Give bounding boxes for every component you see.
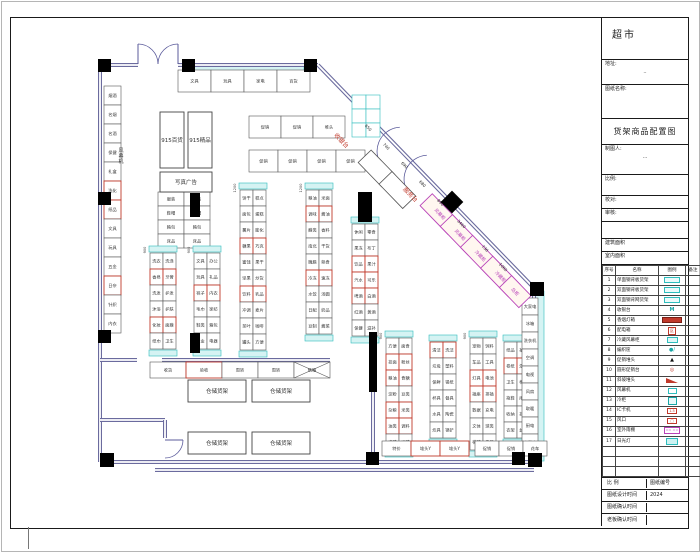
shelf-label: 文具	[108, 225, 117, 232]
shelf-cell	[352, 95, 366, 109]
shelf-label: 电视	[526, 371, 535, 378]
shelf-label: 周转	[272, 367, 280, 374]
legend-row	[603, 446, 700, 456]
shelf-label: 熟食	[321, 259, 330, 266]
column	[182, 59, 195, 72]
shelf-label: 收纳	[506, 411, 514, 418]
shelf-label: 黄酒	[367, 309, 375, 316]
column	[100, 453, 114, 467]
shelf-cell	[352, 109, 366, 123]
shelf-label: 纸巾	[152, 338, 160, 345]
shelf-label: 花车	[531, 445, 539, 452]
address-row: 地址: ··	[602, 60, 688, 85]
shelf-label: 豆制	[308, 323, 316, 330]
building-area-label: 建筑面积	[602, 239, 688, 252]
address-value: ··	[605, 70, 685, 76]
shelf-label: 酱菜	[321, 323, 330, 330]
shelf-label: 充电	[485, 407, 494, 414]
shelf-label: 促销	[259, 158, 267, 165]
door-arc	[165, 440, 183, 458]
shelf-label: 薯片	[242, 227, 250, 234]
shelf-label: 面食	[401, 343, 410, 350]
shelf-label: 文具	[196, 258, 205, 265]
door-arc	[158, 44, 178, 64]
shelf-label: 特价	[392, 445, 401, 451]
title-block-bottom-row: 图纸设计时间2024	[602, 490, 688, 502]
shelf-label: 饮料	[242, 291, 251, 298]
shelf-label: 挂面	[388, 359, 396, 366]
shelf-label: 五金	[108, 263, 117, 269]
legend-symbol-cyansm	[668, 388, 677, 394]
column	[190, 193, 200, 217]
shelf-label: 床品	[167, 238, 175, 245]
shelf-label: 零食	[367, 229, 376, 236]
shelf-label: 纸品	[108, 206, 116, 213]
shelf-label: 洗洁	[445, 347, 453, 354]
shelf-label: 速冻	[321, 275, 329, 282]
shelf-label: 汤圆	[321, 291, 329, 298]
shelf-label: 调料	[401, 423, 410, 430]
shelf-label: 米类	[401, 407, 410, 414]
legend-row: 10圆形促销台◎	[603, 366, 700, 376]
shelf-label: 冰箱	[526, 320, 534, 327]
shelf-label: 蛋糕	[255, 211, 264, 218]
legend-symbol-cyanrect	[664, 297, 680, 303]
column	[369, 332, 377, 392]
shelf-endcap	[305, 183, 333, 189]
shelf-label: 粮油	[308, 195, 316, 202]
fixture-label: 915百货	[161, 136, 183, 144]
check-label: 校对:	[602, 196, 688, 209]
shelf-label: 水饺	[308, 291, 317, 298]
legend-row	[603, 456, 700, 466]
shelf-label: 糖果	[242, 243, 251, 250]
legend-row: 3双面钢背网货架	[603, 296, 700, 306]
legend-table: 序号名称图例备注1单面钢背板货架2双面钢背板货架3双面钢背网货架4收银台M5香烟…	[602, 265, 688, 478]
legend-row	[603, 466, 700, 476]
shelf-label: 鞋帽	[167, 210, 175, 217]
legend-row: 6配电箱区	[603, 326, 700, 336]
fixture-label: 写真广告	[175, 178, 198, 186]
drawing-name-label: 图纸名称:	[602, 85, 688, 119]
shelf-label: 饮品	[354, 261, 362, 268]
legend-symbol-tealsm	[667, 337, 678, 343]
shelf-label: 茶叶	[242, 323, 251, 330]
shelf-label: 服装	[167, 196, 176, 203]
shelf-label: 卷纸	[506, 363, 515, 370]
legend-symbol-tri: ▲	[670, 357, 674, 363]
shelf-label: 促销	[293, 124, 301, 131]
shelf-label: 杂粮	[388, 407, 397, 414]
shelf-label: 插座	[472, 391, 480, 398]
plan-text: 1200	[233, 184, 237, 193]
legend-row: 15风口□	[603, 416, 700, 426]
legend-symbol-tealbox	[668, 397, 677, 405]
shelf-label: 车品	[472, 359, 480, 366]
plan-text: 900	[143, 247, 147, 254]
shelf-label: 乳品	[255, 291, 263, 298]
shelf-label: 清洁	[432, 347, 440, 354]
shelf-label: 休闲	[354, 229, 362, 236]
shelf-label: 饲料	[485, 343, 494, 350]
shelf-label: 坚果	[242, 275, 251, 282]
column	[304, 59, 317, 72]
floor-plan: 烟酒名烟名酒保健礼盒洗化纸品文具玩具五金日杂针织内衣服装服装鞋帽鞋帽箱包箱包床品…	[0, 0, 600, 555]
shelf-label: 礼盒	[108, 168, 117, 175]
shelf-label: 米面	[321, 195, 329, 202]
title-block-bottom-rows: 比 例图纸编号图纸设计时间2024图纸确认时间老板确认时间	[602, 478, 688, 526]
fixture-label: 仓储货架	[206, 387, 229, 395]
plan-text: 风幕机	[118, 148, 123, 165]
fixture-label: 仓储货架	[270, 387, 293, 395]
shelf-cell	[366, 95, 380, 109]
shelf-label: 促销	[507, 445, 515, 452]
address-label: 地址:	[605, 61, 617, 67]
shelf-endcap	[149, 350, 177, 356]
shelf-label: 餐具	[445, 395, 454, 402]
blank-row	[602, 222, 688, 239]
shelf-label: 咖啡	[255, 323, 264, 330]
legend-symbol-tealM: M	[670, 307, 675, 313]
legend-symbol-cyanrect	[664, 277, 680, 283]
legend-symbol-redbox: 区	[668, 327, 676, 335]
title-block-bottom-row: 图纸确认时间	[602, 502, 688, 514]
shelf-label: 风扇	[526, 388, 534, 395]
door-arc	[138, 44, 158, 64]
shelf-label: 卫生	[165, 338, 173, 344]
shelf-label: 袜子	[196, 290, 204, 297]
shelf-label: 促销	[346, 158, 354, 165]
shelf-label: 名酒	[108, 130, 116, 137]
shelf-label: 促销	[483, 445, 491, 452]
shelf-label: 油类	[388, 423, 397, 430]
fixture-label: 仓储货架	[270, 439, 293, 447]
legend-row: 8编织筐●/	[603, 346, 700, 356]
column	[358, 192, 372, 222]
legend-symbol-redsm: □	[667, 418, 677, 424]
shelf-label: 食糖	[401, 375, 410, 382]
shelf-label: 护肤	[165, 306, 174, 313]
shelf-label: 针织	[108, 301, 116, 308]
legend-header: 名称	[616, 266, 659, 276]
column	[528, 453, 542, 467]
shelf-label: 家纺	[209, 306, 217, 313]
shelf-label: 保鲜	[432, 379, 441, 386]
fixture-label: 915精品	[189, 136, 211, 144]
shelf-cell	[352, 123, 366, 137]
shelf-label: 衣架	[506, 427, 514, 434]
shelf-label: 护发	[165, 290, 174, 297]
shelf-label: 烟酒	[108, 92, 116, 99]
legend-symbol-dot: ●/	[669, 347, 675, 353]
title-block-bottom-row: 老板确认时间	[602, 514, 688, 526]
plan-text: 900	[187, 247, 191, 254]
shelf-label: 布丁	[367, 245, 375, 252]
legend-row: 17日光灯	[603, 436, 700, 446]
shelf-label: 鞋类	[196, 322, 205, 329]
shelf-label: 方便	[388, 343, 397, 350]
shelf-label: 果冻	[354, 245, 362, 252]
plan-text: 900	[379, 333, 383, 340]
shelf-label: 冷冻	[308, 275, 316, 282]
shelf-label: 促销	[261, 124, 269, 131]
shelf-label: 厨电	[526, 422, 535, 428]
shelf-label: 锅铲	[445, 427, 453, 434]
column	[98, 59, 111, 72]
shelf-label: 堆头Y	[420, 445, 431, 452]
shelf-label: 卫生	[506, 379, 514, 385]
shelf-label: 名烟	[108, 111, 116, 118]
shelf-label: 堆头Y	[449, 445, 460, 452]
shelf-label: 面包	[242, 211, 251, 218]
legend-symbol-cyanrect	[664, 287, 680, 293]
shelf-label: 罐头	[242, 339, 250, 346]
shelf-label: 啤酒	[354, 293, 362, 300]
shelf-label: 堆头	[325, 124, 333, 131]
column	[98, 192, 111, 205]
shelf-endcap	[149, 246, 177, 252]
legend-row: 9促销堆头▲	[603, 356, 700, 366]
cad-drawing-page: { "title_block": { "store_name": "超市", "…	[0, 0, 700, 555]
shelf-label: 醋类	[308, 227, 317, 234]
drawing-title: 货架商品配置图	[602, 119, 688, 145]
scale-label: 比例:	[602, 175, 688, 196]
legend-symbol-circ: ◎	[670, 367, 674, 373]
shelf-endcap	[469, 331, 497, 337]
legend-row: 14IC卡机1.5	[603, 406, 700, 416]
shelf-label: 促销	[317, 158, 325, 165]
legend-row: 4收银台M	[603, 306, 700, 316]
shelf-label: 淀粉	[388, 391, 397, 398]
shelf-endcap	[239, 183, 267, 189]
shelf-label: 洗涤	[165, 258, 173, 265]
title-block: 超市 地址: ·· 图纸名称: 货架商品配置图 制图人: ··· 比例: 校对:…	[601, 18, 688, 526]
column	[366, 452, 379, 465]
shelf-label: 垃圾	[432, 363, 441, 370]
shelf-label: 空调	[526, 354, 534, 361]
shelf-label: 水具	[432, 411, 441, 418]
shelf-label: 蜜饯	[242, 259, 250, 266]
interior-area-label: 室内面积	[602, 252, 688, 265]
shelf-label: 汽水	[354, 277, 363, 283]
shelf-label: 饼干	[242, 195, 250, 202]
column	[98, 330, 111, 343]
legend-row: 1单面钢背板货架	[603, 276, 700, 286]
shelf-label: 杯具	[432, 395, 441, 402]
shelf-endcap	[305, 335, 333, 341]
plan-text: 900	[463, 333, 467, 340]
shelf-label: 香料	[321, 227, 330, 234]
shelf-label: 礼品	[209, 274, 217, 281]
shelf-label: 验收	[200, 367, 209, 374]
shelf-label: 陶瓷	[445, 411, 453, 418]
shelf-label: 箱包	[193, 224, 202, 231]
shelf-label: 取暖	[526, 405, 535, 412]
legend-row: 13冷柜	[603, 396, 700, 406]
legend-header: 序号	[603, 266, 616, 276]
shelf-label: 面膜	[165, 322, 173, 329]
shelf-label: 纸箱	[308, 367, 316, 374]
legend-header: 图例	[659, 266, 686, 276]
shelf-label: 箱包	[167, 224, 176, 231]
store-name: 超市	[602, 18, 688, 60]
shelf-label: 床品	[193, 238, 201, 245]
legend-row: 2双面钢背板货架	[603, 286, 700, 296]
shelf-endcap	[193, 246, 221, 252]
shelf-label: 保健	[354, 325, 363, 332]
shelf-label: 粉丝	[401, 359, 409, 366]
shelf-label: 冲调	[242, 307, 250, 314]
shelf-label: 排插	[485, 391, 493, 398]
shelf-label: 滋补	[367, 325, 376, 332]
shelf-label: 奶品	[321, 307, 329, 314]
drafter-row: 制图人: ···	[602, 145, 688, 175]
shelf-endcap	[239, 351, 267, 357]
shelf-label: 南北	[308, 243, 317, 250]
shelf-label: 干货	[321, 243, 329, 250]
legend-symbol-redsm: 1.5	[667, 408, 677, 414]
shelf-label: 洗衣	[152, 258, 161, 265]
shelf-label: 纸品	[506, 347, 514, 354]
audit-label: 审核:	[602, 209, 688, 222]
shelf-label: 家电	[256, 78, 265, 84]
shelf-label: 可乐	[367, 277, 375, 283]
legend-row: 5香烟灯箱	[603, 316, 700, 326]
shelf-label: 数据	[472, 407, 480, 414]
shelf-label: 洗衣机	[524, 337, 537, 344]
shelf-label: 电器	[209, 338, 218, 345]
drafter-label: 制图人:	[605, 146, 622, 152]
shelf-label: 红酒	[354, 309, 362, 316]
shelf-label: 洗发	[152, 290, 161, 297]
fixture-label: 仓储货架	[206, 439, 229, 447]
shelf-label: 腌腊	[308, 259, 317, 266]
shelf-label: 宠物	[472, 343, 480, 350]
shelf-label: 化妆	[152, 322, 161, 329]
column	[512, 452, 525, 465]
shelf-label: 香皂	[152, 274, 160, 281]
shelf-endcap	[385, 331, 413, 337]
shelf-label: 麦片	[255, 307, 263, 314]
shelf-label: 锡纸	[445, 379, 454, 386]
legend-row: 12风幕机	[603, 386, 700, 396]
dimension-text: 740	[382, 142, 391, 151]
shelf-label: 促销	[288, 158, 296, 165]
shelf-label: 拖鞋	[506, 395, 515, 402]
shelf-label: 白酒	[367, 293, 375, 300]
shelf-label: 糕点	[255, 195, 263, 202]
shelf-label: 酱油	[321, 211, 329, 218]
shelf-label: 方便	[255, 339, 264, 346]
legend-row: 7冷藏风幕柜	[603, 336, 700, 346]
shelf-label: 果汁	[367, 261, 376, 268]
shelf-label: 豆类	[401, 391, 410, 398]
legend-row: 11斜坡堆头	[603, 376, 700, 386]
plan-text: 1200	[299, 184, 303, 193]
legend-symbol-cyanbox	[666, 438, 678, 445]
shelf-label: 膨化	[255, 227, 264, 234]
shelf-label: 内衣	[108, 320, 117, 327]
legend-symbol-redbar	[662, 317, 682, 323]
shelf-label: 内衣	[209, 290, 218, 297]
shelf-label: 周转	[236, 367, 244, 374]
dimension-text: 690	[400, 161, 409, 170]
shelf-label: 沐浴	[152, 306, 161, 313]
legend-header: 备注	[686, 266, 700, 276]
shelf-label: 炒货	[255, 275, 263, 282]
shelf-label: 箱包	[209, 322, 218, 329]
shelf-label: 保健	[108, 149, 117, 156]
shelf-label: 塑料	[445, 363, 454, 370]
shelf-label: 文具	[190, 78, 199, 85]
legend-row: 16室外雨棚== ==	[603, 426, 700, 436]
shelf-label: 牙膏	[165, 274, 173, 281]
shelf-label: 炊具	[432, 427, 441, 434]
shelf-label: 粮油	[388, 375, 396, 382]
shelf-label: 收货	[164, 367, 172, 374]
shelf-label: 灯具	[472, 375, 481, 382]
shelf-label: 毛巾	[196, 306, 204, 313]
title-block-bottom-row: 比 例图纸编号	[602, 478, 688, 490]
shelf-label: 调味	[308, 211, 317, 218]
legend-symbol-magbox: == ==	[664, 427, 680, 434]
column	[530, 282, 544, 296]
dimension-text: 680	[418, 179, 427, 188]
shelf-endcap	[429, 335, 457, 341]
shelf-label: 球类	[485, 423, 494, 430]
drafter-value: ···	[605, 155, 685, 161]
column	[190, 333, 200, 353]
shelf-label: 办公	[209, 258, 218, 265]
shelf-label: 文体	[472, 423, 481, 430]
shelf-cell	[366, 109, 380, 123]
legend-symbol-wedge	[666, 378, 678, 383]
shelf-label: 电池	[485, 375, 494, 381]
shelf-label: 大家电	[524, 303, 537, 310]
shelf-label: 百货	[289, 78, 297, 85]
